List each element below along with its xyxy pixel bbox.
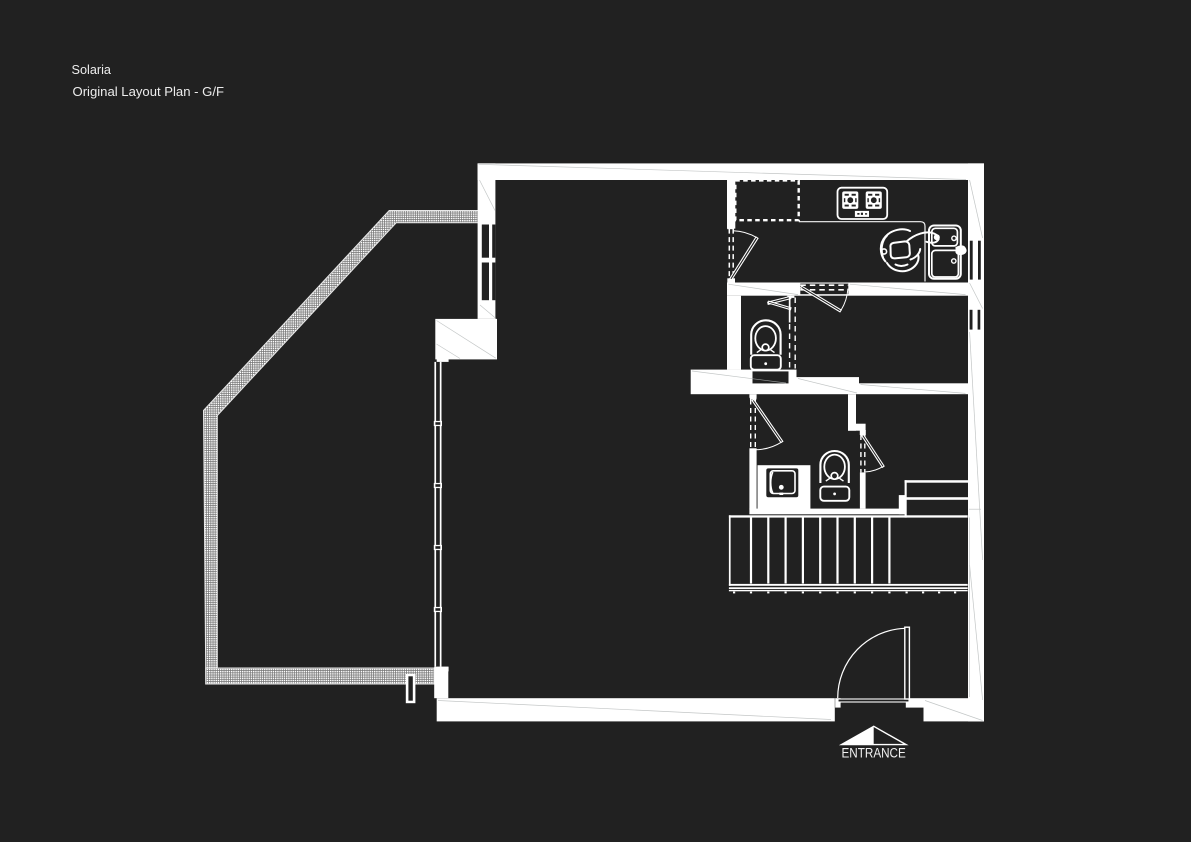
svg-text:Original Layout Plan - G/F: Original Layout Plan - G/F xyxy=(73,84,225,99)
svg-text:Solaria: Solaria xyxy=(72,62,112,77)
svg-text:ENTRANCE: ENTRANCE xyxy=(842,746,906,761)
